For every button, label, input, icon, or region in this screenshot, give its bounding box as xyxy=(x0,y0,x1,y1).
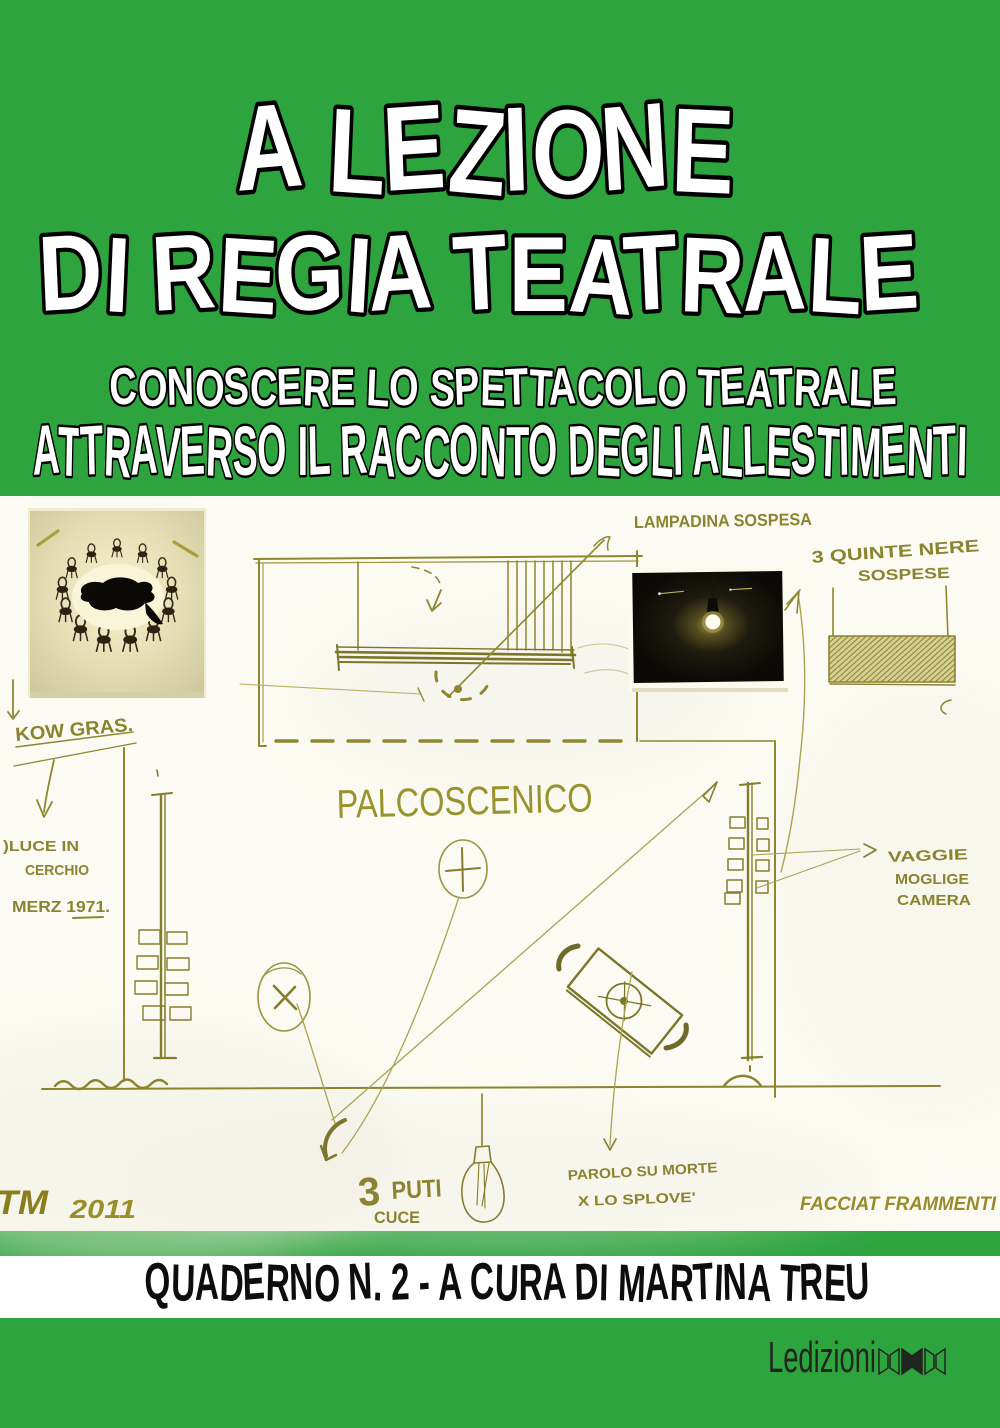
svg-text:CONOSCERE LO SPETTACOLO TEATRA: CONOSCERE LO SPETTACOLO TEATRALE xyxy=(108,358,898,419)
svg-text:CAMERA: CAMERA xyxy=(897,892,971,909)
svg-text:MOGLIGE: MOGLIGE xyxy=(895,871,969,888)
svg-text:CERCHIO: CERCHIO xyxy=(25,862,89,879)
svg-text:VAGGIE: VAGGIE xyxy=(888,846,969,866)
svg-text:ATTRAVERSO IL RACCONTO DEGLI A: ATTRAVERSO IL RACCONTO DEGLI ALLESTIMENT… xyxy=(30,411,969,492)
svg-text:DI REGIA TEATRALE: DI REGIA TEATRALE xyxy=(35,211,921,337)
svg-text:TM: TM xyxy=(0,1184,49,1222)
svg-text:SOSPESE: SOSPESE xyxy=(858,565,951,585)
svg-text:2011: 2011 xyxy=(69,1194,136,1224)
svg-text:Ledizioni: Ledizioni xyxy=(768,1333,876,1382)
svg-text:PALCOSCENICO: PALCOSCENICO xyxy=(336,776,593,827)
svg-text:A LEZIONE: A LEZIONE xyxy=(229,79,736,221)
svg-text:MERZ 1971.: MERZ 1971. xyxy=(12,899,110,916)
svg-text:PUTI: PUTI xyxy=(391,1174,442,1205)
svg-text:CUCE: CUCE xyxy=(374,1208,420,1227)
svg-text:FACCIAT FRAMMENTI: FACCIAT FRAMMENTI xyxy=(800,1194,997,1215)
svg-text:LAMPADINA SOSPESA: LAMPADINA SOSPESA xyxy=(634,510,812,532)
svg-text:)LUCE IN: )LUCE IN xyxy=(3,838,79,855)
svg-text:QUADERNO N. 2 - A CURA DI MART: QUADERNO N. 2 - A CURA DI MARTINA TREU xyxy=(143,1253,871,1314)
